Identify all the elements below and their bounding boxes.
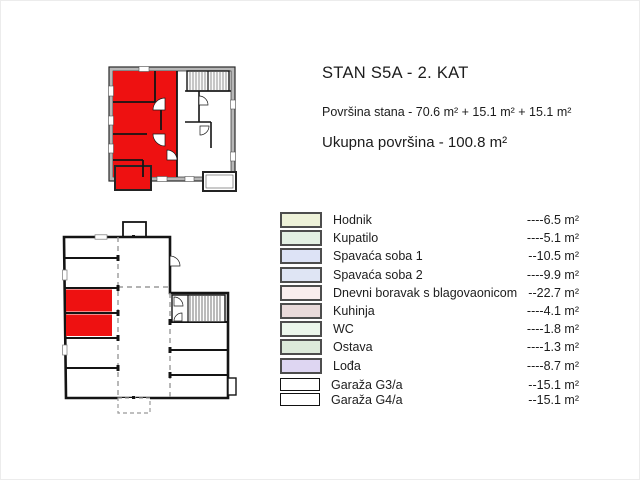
room-color-swatch [280, 393, 320, 406]
room-label: Kupatilo [333, 231, 378, 245]
room-area-value: --22.7 m² [528, 286, 579, 300]
room-label: Garaža G4/a [331, 393, 403, 407]
room-label: Hodnik [333, 213, 372, 227]
area-breakdown: Površina stana - 70.6 m² + 15.1 m² + 15.… [322, 105, 571, 119]
highlighted-garage-g3a [66, 290, 112, 312]
legend-row: Kuhinja ----4.1 m² [280, 302, 579, 320]
highlighted-balcony [115, 166, 151, 190]
door-arc [170, 256, 180, 266]
room-area-value: --15.1 m² [528, 378, 579, 392]
room-label: Garaža G3/a [331, 378, 403, 392]
room-color-swatch [280, 321, 322, 337]
legend-row: Garaža G3/a --15.1 m² [280, 378, 579, 393]
right-niche [228, 378, 236, 395]
room-area-value: --15.1 m² [528, 393, 579, 407]
legend-row: Garaža G4/a --15.1 m² [280, 392, 579, 407]
room-area-value: ----5.1 m² [527, 231, 579, 245]
legend-row: Ostava ----1.3 m² [280, 338, 579, 356]
legend-row: WC ----1.8 m² [280, 320, 579, 338]
room-label: Dnevni boravak s blagovaonicom [333, 286, 517, 300]
room-area-value: ----6.5 m² [527, 213, 579, 227]
room-color-swatch [280, 285, 322, 301]
room-color-swatch [280, 248, 322, 264]
legend-row: Dnevni boravak s blagovaonicom --22.7 m² [280, 284, 579, 302]
room-color-swatch [280, 378, 320, 391]
ramp-protrusion [118, 398, 150, 413]
highlighted-garage-g4a [66, 315, 112, 337]
room-label: Spavaća soba 1 [333, 249, 423, 263]
flyer-canvas: STAN S5A - 2. KAT Površina stana - 70.6 … [0, 0, 640, 480]
garage-staircase [172, 295, 225, 322]
legend-row: Spavaća soba 2 ----9.9 m² [280, 266, 579, 284]
legend-row: Kupatilo ----5.1 m² [280, 229, 579, 247]
room-color-swatch [280, 358, 322, 374]
room-color-swatch [280, 303, 322, 319]
room-legend: Hodnik ----6.5 m² Kupatilo ----5.1 m² Sp… [280, 211, 579, 407]
room-label: WC [333, 322, 354, 336]
shaft-protrusion [123, 222, 146, 237]
room-label: Ostava [333, 340, 373, 354]
staircase [187, 71, 229, 91]
total-area: Ukupna površina - 100.8 m² [322, 134, 507, 151]
page-title: STAN S5A - 2. KAT [322, 64, 622, 83]
room-area-value: --10.5 m² [528, 249, 579, 263]
room-color-swatch [280, 267, 322, 283]
room-area-value: ----4.1 m² [527, 304, 579, 318]
room-color-swatch [280, 212, 322, 228]
room-area-value: ----8.7 m² [527, 359, 579, 373]
apartment-floor-plan [101, 58, 241, 196]
room-color-swatch [280, 339, 322, 355]
neighbor-balcony [203, 172, 236, 191]
room-label: Lođa [333, 359, 361, 373]
room-area-value: ----9.9 m² [527, 268, 579, 282]
room-color-swatch [280, 230, 322, 246]
room-area-value: ----1.3 m² [527, 340, 579, 354]
room-label: Kuhinja [333, 304, 375, 318]
garage-floor-plan [58, 220, 240, 420]
room-area-value: ----1.8 m² [527, 322, 579, 336]
title-block: STAN S5A - 2. KAT Površina stana - 70.6 … [322, 64, 622, 83]
legend-row: Spavaća soba 1 --10.5 m² [280, 247, 579, 265]
room-label: Spavaća soba 2 [333, 268, 423, 282]
legend-row: Hodnik ----6.5 m² [280, 211, 579, 229]
legend-row: Lođa ----8.7 m² [280, 357, 579, 375]
highlighted-apartment-area [113, 71, 177, 177]
